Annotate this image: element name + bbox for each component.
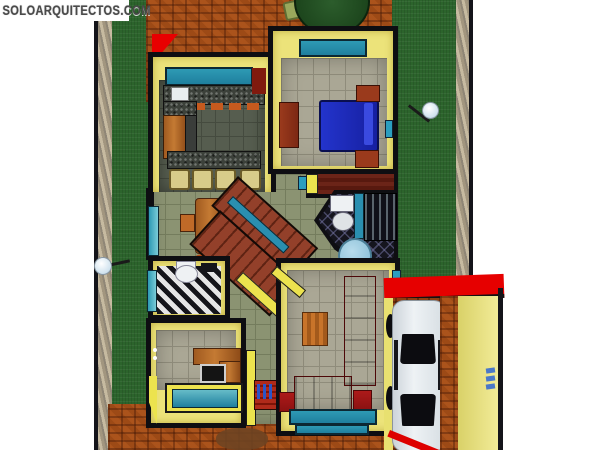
shower-stall: [364, 193, 397, 241]
bedroom-dresser: [279, 102, 299, 148]
entry-baluster: [263, 384, 266, 399]
car-windshield: [400, 334, 436, 364]
right-boundary-edge: [469, 0, 473, 292]
red-wall-segment: [252, 68, 266, 94]
bathroom-shelf: [201, 263, 217, 272]
counter-cushion: [211, 103, 223, 110]
living-window-icon: [289, 409, 377, 425]
bedroom-window-icon: [299, 39, 367, 57]
left-boundary-wall: [98, 0, 112, 450]
bed-pillows: [364, 103, 373, 145]
bar-stool: [192, 169, 213, 190]
garage-wall: [458, 296, 502, 450]
doormat: [216, 428, 268, 450]
car-side-window: [394, 340, 398, 390]
light-switch: [153, 348, 157, 352]
kitchen-sink: [171, 87, 189, 101]
living-window-icon: [295, 424, 369, 435]
bathroom-sink: [330, 195, 354, 212]
floor-plan-render: SOLOARQUITECTOS.COM: [0, 0, 600, 450]
bedroom-wall-vent-icon: [385, 120, 393, 138]
coffee-table: [302, 312, 328, 346]
nightstand: [356, 85, 380, 102]
bathroom-toilet: [332, 212, 354, 231]
entry-baluster: [269, 384, 272, 399]
counter-cushion: [229, 103, 241, 110]
computer-monitor: [200, 364, 226, 383]
hall-wall-corner: [306, 174, 318, 194]
kitchen-window-icon: [165, 67, 253, 86]
guest-toilet: [175, 265, 198, 283]
garage-right-edge: [498, 288, 503, 450]
hall-window-icon: [298, 176, 307, 190]
car-rear-window: [400, 394, 436, 426]
garage-brick-column: [440, 296, 458, 450]
light-switch: [153, 356, 157, 360]
watermark-text: SOLOARQUITECTOS.COM: [0, 3, 151, 18]
shower-divider: [354, 193, 364, 239]
office-window-glass-icon: [172, 389, 238, 408]
nightstand: [355, 150, 379, 168]
long-sofa: [344, 276, 376, 386]
guest-bathroom-window-icon: [147, 270, 157, 312]
dining-chair: [180, 214, 195, 232]
watermark-bar: SOLOARQUITECTOS.COM: [0, 0, 129, 21]
side-table: [353, 390, 372, 410]
entry-baluster: [257, 384, 260, 399]
breakfast-bar: [167, 151, 261, 169]
garden-lamp: [94, 257, 112, 275]
bar-stool: [169, 169, 190, 190]
right-boundary-wall: [456, 0, 470, 292]
dining-window-icon: [148, 206, 159, 256]
counter-cushion: [247, 103, 259, 110]
garden-lamp: [422, 102, 439, 119]
